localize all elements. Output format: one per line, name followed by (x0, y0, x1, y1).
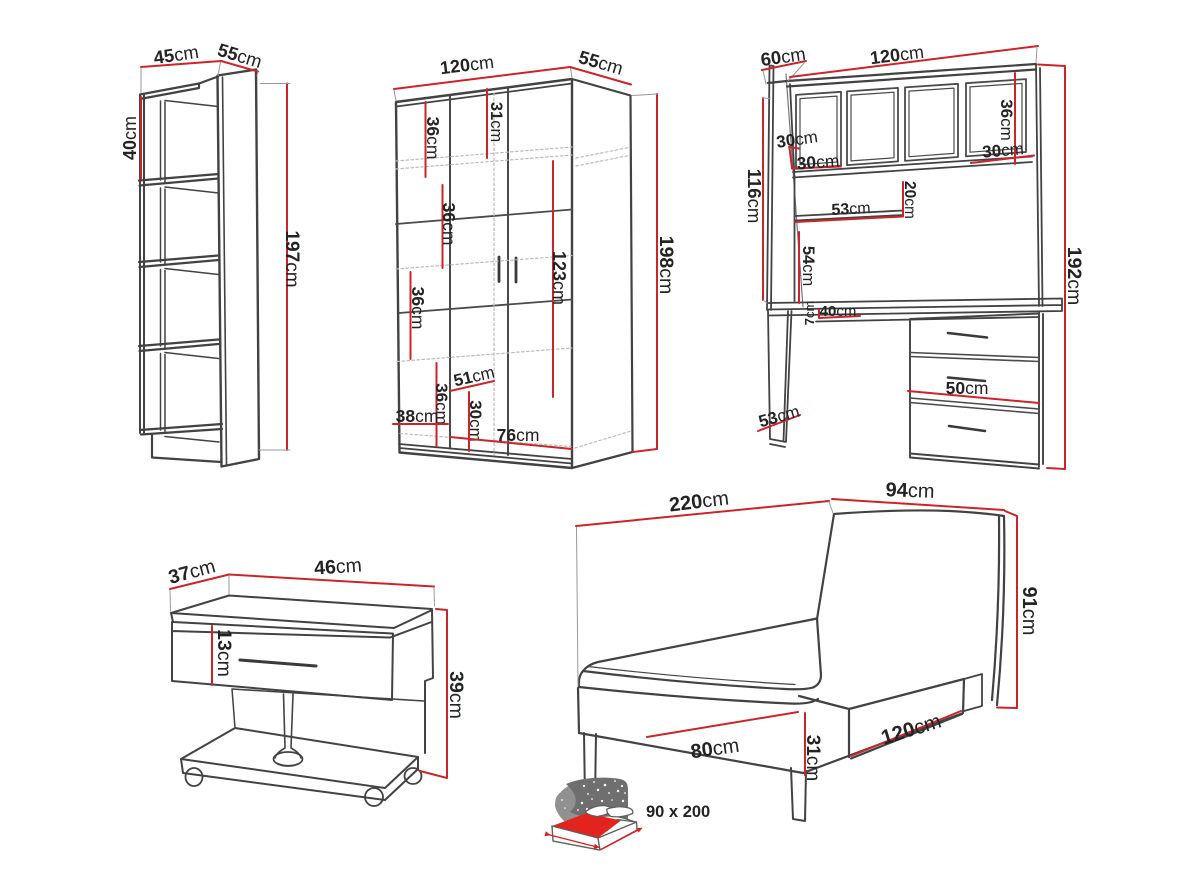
svg-text:91cm: 91cm (1018, 587, 1040, 636)
svg-text:36cm: 36cm (439, 203, 459, 246)
svg-text:40cm: 40cm (120, 116, 140, 160)
svg-text:50cm: 50cm (946, 378, 989, 398)
svg-text:30cm: 30cm (775, 127, 819, 152)
svg-text:53cm: 53cm (756, 401, 801, 431)
svg-text:38cm: 38cm (396, 406, 439, 426)
svg-text:36cm: 36cm (998, 99, 1017, 141)
svg-text:20cm: 20cm (902, 181, 919, 219)
svg-text:76cm: 76cm (497, 425, 540, 445)
svg-text:116cm: 116cm (745, 169, 766, 224)
svg-text:55cm: 55cm (576, 46, 625, 79)
svg-text:90 x 200: 90 x 200 (646, 803, 710, 821)
svg-text:120cm: 120cm (869, 42, 925, 68)
svg-text:120cm: 120cm (439, 52, 495, 78)
svg-text:31cm: 31cm (487, 102, 505, 142)
svg-text:120cm: 120cm (878, 709, 944, 749)
svg-text:60cm: 60cm (759, 42, 807, 69)
svg-text:53cm: 53cm (831, 199, 871, 218)
svg-text:30cm: 30cm (467, 400, 486, 442)
svg-text:30cm: 30cm (981, 139, 1024, 162)
svg-text:7cm: 7cm (802, 301, 817, 326)
svg-text:30cm: 30cm (796, 151, 840, 174)
svg-text:54cm: 54cm (799, 246, 817, 286)
svg-text:80cm: 80cm (689, 735, 741, 764)
svg-text:31cm: 31cm (803, 735, 824, 781)
svg-text:94cm: 94cm (885, 479, 935, 503)
svg-text:40cm: 40cm (820, 303, 857, 320)
svg-text:197cm: 197cm (282, 230, 303, 287)
svg-text:36cm: 36cm (408, 287, 428, 330)
svg-text:192cm: 192cm (1063, 247, 1085, 306)
svg-text:39cm: 39cm (445, 671, 467, 719)
svg-text:123cm: 123cm (549, 251, 569, 305)
svg-text:13cm: 13cm (213, 629, 235, 677)
svg-text:198cm: 198cm (655, 236, 677, 295)
svg-text:36cm: 36cm (423, 117, 443, 160)
svg-text:46cm: 46cm (313, 554, 362, 579)
